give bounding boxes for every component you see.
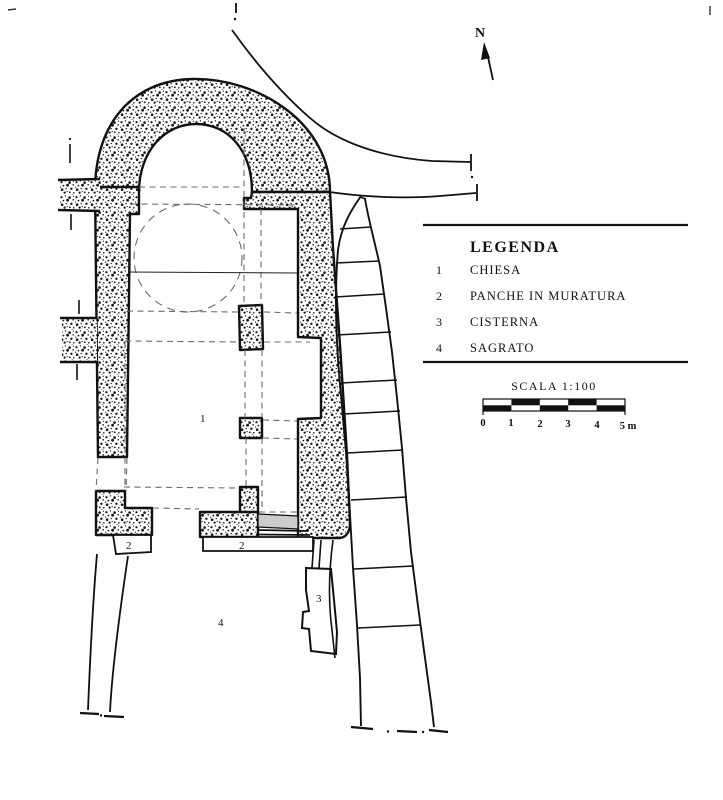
legend-item-label: CISTERNA (470, 315, 539, 329)
plan-sheet: 1 2 2 3 4 N LEGENDA 1 CHIESA 2 PANCHE IN… (0, 0, 723, 800)
east-wall (244, 192, 350, 538)
scale-tick: 5 m (620, 421, 637, 432)
scale-tick: 1 (508, 418, 513, 429)
north-arrow-shaft (488, 57, 493, 80)
pillar-upper (239, 305, 263, 350)
scale-bar: SCALA 1:100 0 1 2 3 4 5 m (480, 379, 636, 432)
scale-tick: 3 (565, 419, 570, 430)
nave-step-line (128, 272, 297, 273)
sheet-corner-marks (8, 6, 710, 15)
stepped-path (335, 196, 448, 733)
north-arrow-head (481, 42, 490, 60)
legend-item-label: SAGRATO (470, 341, 534, 355)
scale-bar-blocks (483, 399, 625, 415)
label-chiesa: 1 (200, 413, 206, 425)
north-arrow: N (475, 26, 493, 80)
label-bench-right: 2 (239, 540, 245, 552)
legend-title: LEGENDA (470, 239, 560, 256)
wall-stub-upper (60, 179, 100, 211)
pillar-stub (240, 487, 258, 514)
benches (113, 535, 313, 554)
wall-stub-lower (62, 318, 97, 362)
cistern-outline (302, 568, 337, 654)
church-walls (95, 79, 350, 538)
step-treads (335, 197, 420, 628)
legend-item-label: CHIESA (470, 263, 521, 277)
southwest-pier (96, 491, 152, 535)
legend-item-num: 2 (436, 289, 443, 303)
scale-tick: 0 (480, 418, 485, 429)
southeast-pier (200, 512, 258, 537)
legend-item-4: 4 SAGRATO (436, 341, 534, 355)
label-sagrato: 4 (218, 617, 224, 629)
north-label: N (475, 26, 485, 41)
legend-item-1: 1 CHIESA (436, 263, 521, 277)
legend-item-num: 1 (436, 263, 443, 277)
scale-tick: 4 (594, 420, 600, 431)
west-wall-stubs (58, 138, 100, 380)
legend-item-num: 3 (436, 315, 443, 329)
label-cisterna: 3 (316, 593, 322, 605)
legend-item-2: 2 PANCHE IN MURATURA (436, 289, 626, 303)
pillar-middle (240, 418, 262, 438)
legend: LEGENDA 1 CHIESA 2 PANCHE IN MURATURA 3 … (423, 225, 688, 362)
apse-wall (95, 79, 330, 192)
bench-right (203, 537, 313, 551)
legend-item-3: 3 CISTERNA (436, 315, 539, 329)
west-wall (95, 187, 139, 457)
church-plan-drawing: 1 2 2 3 4 N LEGENDA 1 CHIESA 2 PANCHE IN… (0, 0, 723, 800)
sagrato-boundary (80, 554, 128, 717)
bench-left (113, 535, 151, 554)
path-end-ticks (351, 727, 448, 732)
legend-item-label: PANCHE IN MURATURA (470, 289, 626, 303)
legend-item-num: 4 (436, 341, 443, 355)
scale-label: SCALA 1:100 (511, 379, 597, 393)
dashed-dome-circle (134, 204, 242, 312)
scale-tick-labels: 0 1 2 3 4 5 m (480, 418, 636, 432)
scale-tick: 2 (537, 419, 542, 430)
label-bench-left: 2 (126, 540, 132, 552)
